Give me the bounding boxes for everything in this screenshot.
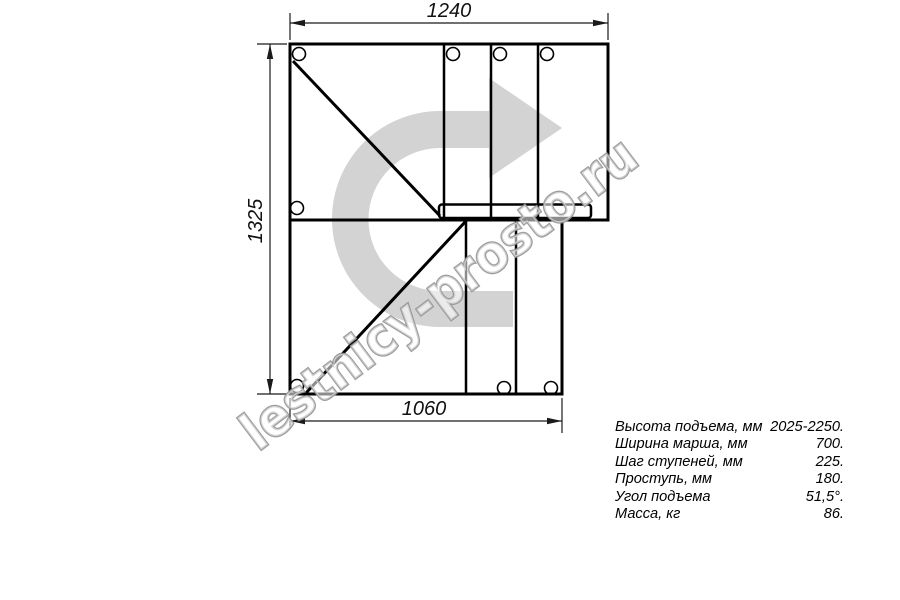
spec-row-flight-width: Ширина марша, мм 700.: [615, 436, 844, 453]
spec-value: 225.: [816, 454, 844, 471]
spec-label: Угол подъема: [615, 489, 710, 506]
drawing-canvas: 1240 1325 1060 lestnicy-prosto.ru Высота…: [0, 0, 900, 600]
hole-marker: [293, 48, 306, 61]
dim-arrowhead-icon: [290, 20, 305, 26]
spec-row-step-pitch: Шаг ступеней, мм 225.: [615, 454, 844, 471]
dimension-left-label: 1325: [245, 198, 267, 243]
hole-marker: [541, 48, 554, 61]
hole-marker: [291, 202, 304, 215]
dimension-bottom-label: 1060: [402, 398, 447, 420]
spec-row-height: Высота подъема, мм 2025-2250.: [615, 419, 844, 436]
spec-label: Масса, кг: [615, 506, 680, 523]
spec-value: 700.: [816, 436, 844, 453]
hole-marker: [494, 48, 507, 61]
dim-arrowhead-icon: [547, 418, 562, 424]
spec-value: 2025-2250.: [770, 419, 844, 436]
spec-label: Шаг ступеней, мм: [615, 454, 743, 471]
spec-table: Высота подъема, мм 2025-2250. Ширина мар…: [615, 419, 844, 523]
dim-arrowhead-icon: [267, 44, 273, 59]
spec-value: 86.: [824, 506, 844, 523]
dimension-left: 1325: [245, 44, 287, 394]
spec-label: Ширина марша, мм: [615, 436, 748, 453]
spec-row-tread: Проступь, мм 180.: [615, 471, 844, 488]
spec-label: Высота подъема, мм: [615, 419, 763, 436]
hole-marker: [447, 48, 460, 61]
dim-arrowhead-icon: [593, 20, 608, 26]
spec-value: 51,5°.: [806, 489, 844, 506]
spec-value: 180.: [816, 471, 844, 488]
spec-row-mass: Масса, кг 86.: [615, 506, 844, 523]
spec-label: Проступь, мм: [615, 471, 712, 488]
dimension-top: 1240: [290, 0, 608, 40]
spec-row-angle: Угол подъема 51,5°.: [615, 489, 844, 506]
dimension-top-label: 1240: [427, 0, 472, 22]
